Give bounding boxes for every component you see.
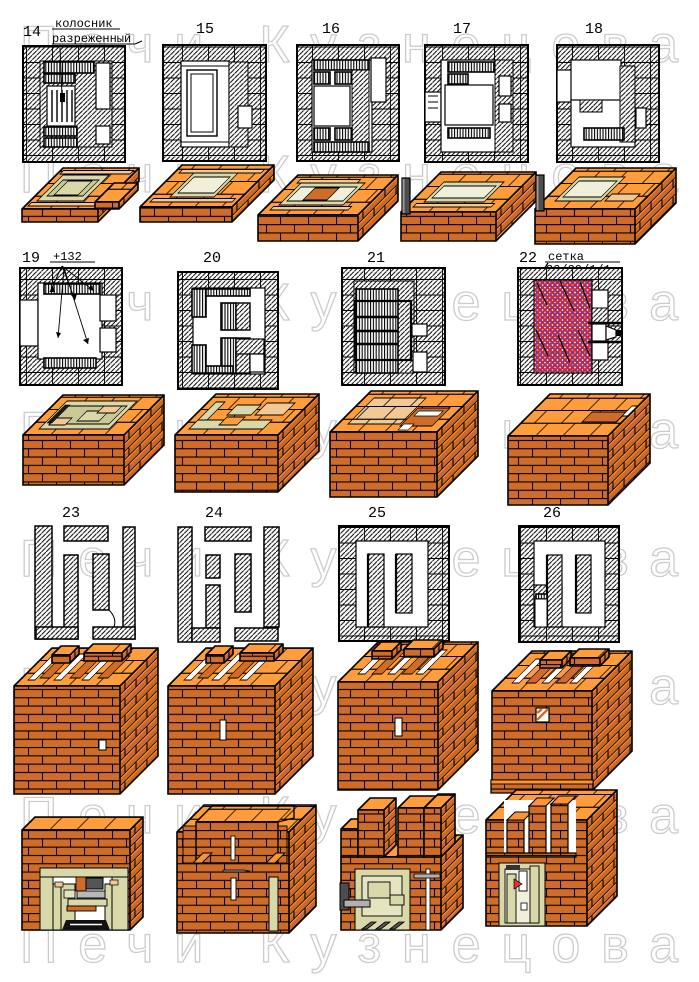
svg-text:22: 22: [519, 250, 537, 267]
svg-text:15: 15: [196, 21, 214, 38]
svg-text:25: 25: [368, 505, 386, 522]
svg-text:14: 14: [23, 24, 41, 41]
svg-text:21: 21: [367, 250, 385, 267]
svg-text:18: 18: [585, 21, 603, 38]
svg-text:19: 19: [22, 250, 40, 267]
svg-text:20: 20: [203, 250, 221, 267]
svg-text:17: 17: [453, 21, 471, 38]
svg-text:24: 24: [205, 505, 223, 522]
svg-text:16: 16: [322, 21, 340, 38]
svg-text:26: 26: [543, 505, 561, 522]
svg-text:23: 23: [62, 505, 80, 522]
